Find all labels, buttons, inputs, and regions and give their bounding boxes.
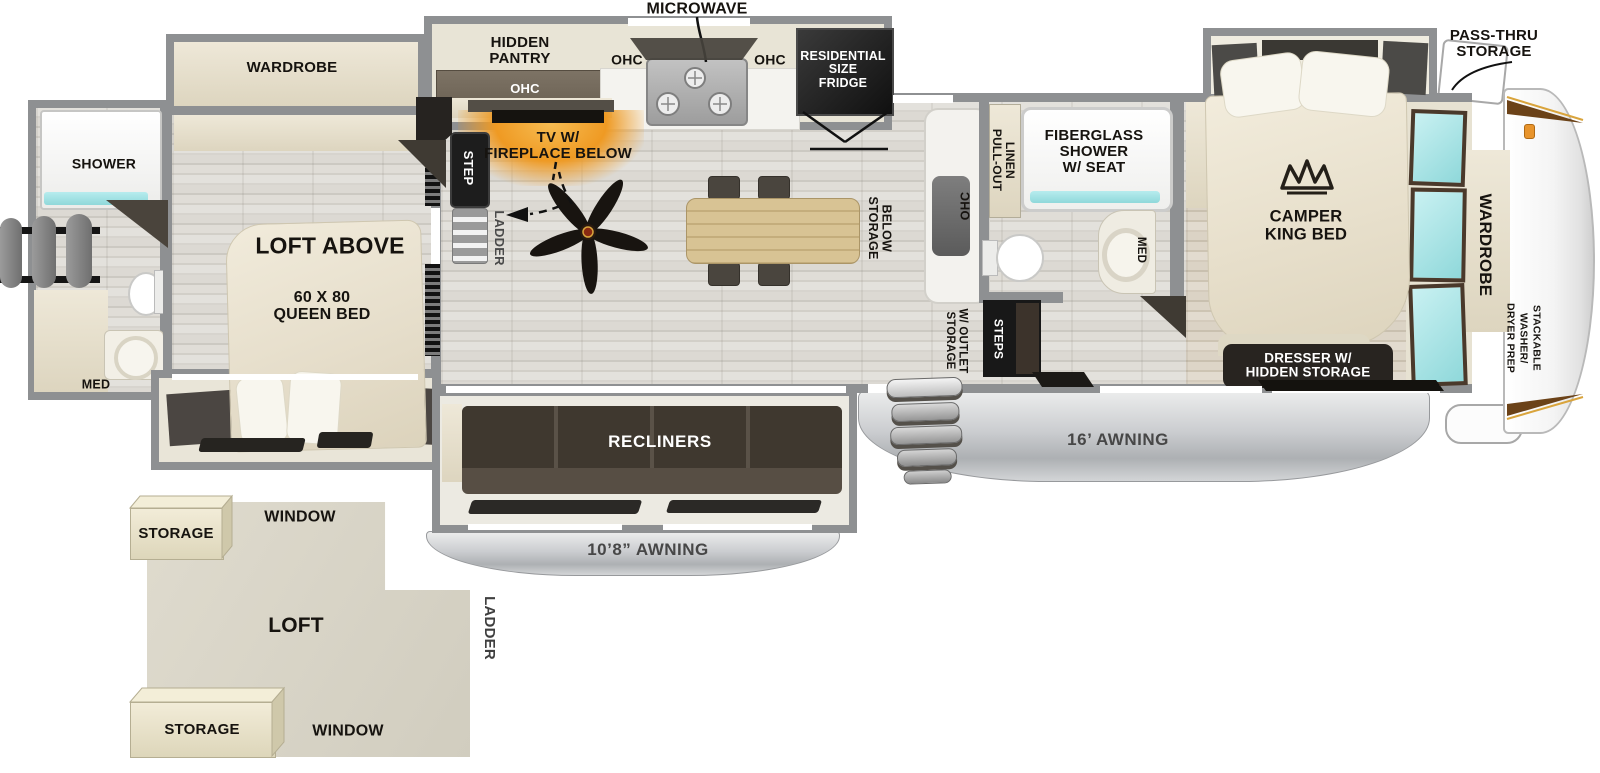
storage-below-label: STORAGE BELOW (866, 197, 893, 260)
wardrobe-mirror-door (1408, 283, 1468, 387)
loft-window-bottom-label: WINDOW (312, 722, 383, 739)
ohc-left-label: OHC (611, 53, 643, 68)
awning-small-label: 10’8” AWNING (587, 541, 709, 559)
entry-step-tread (897, 448, 958, 467)
recliner-wall-gap (663, 524, 812, 530)
hall-window-gap (1100, 386, 1262, 393)
fridge-label: RESIDENTIAL SIZE FRIDGE (800, 50, 886, 90)
rear-wardrobe-cabinet-depth (174, 115, 428, 151)
kitchen-top-window-gap (628, 18, 750, 26)
dinette-chair (758, 262, 790, 286)
shower-rear-label: SHOWER (72, 157, 136, 172)
steps-label: STEPS (992, 319, 1005, 359)
front-shower-water-edge (1030, 191, 1160, 203)
recliner-wall-gap (468, 524, 622, 530)
rear-slide-mat (198, 438, 305, 452)
pantry-ohc-label: OHC (510, 82, 540, 96)
washer-prep-label: STACKABLE WASHER/ DRYER PREP (1503, 303, 1542, 373)
front-toilet-bowl (996, 234, 1044, 282)
dinette-chair (708, 176, 740, 200)
dinette-chair (708, 262, 740, 286)
king-pillow (1297, 50, 1391, 119)
rear-bed-pillow (235, 374, 290, 447)
loft-above-label: LOFT ABOVE (255, 234, 404, 259)
pull-out-linen-label: PULL-OUT LINEN (990, 129, 1016, 191)
recliner-footrest-mat (468, 500, 643, 514)
tv-screen (492, 110, 604, 123)
loft-ladder-label: LADDER (481, 596, 497, 660)
interior-steps-cabinet (1016, 303, 1039, 374)
bike-rack-paddle (0, 218, 22, 288)
entry-step-tread (891, 402, 960, 422)
bike-rack-paddle (32, 216, 56, 288)
pass-thru-label: PASS-THRU STORAGE (1450, 28, 1538, 60)
storage-outlet-label: STORAGE W/ OUTLET (944, 308, 969, 373)
camper-king-label: CAMPER KING BED (1265, 208, 1347, 243)
stove-cooktop (646, 58, 748, 126)
entry-steps (886, 377, 966, 482)
awning-large-label: 16’ AWNING (1067, 431, 1169, 449)
entry-step-tread (890, 425, 963, 446)
rear-bedroom-door-gap (431, 208, 440, 264)
bike-rack-paddle (66, 214, 92, 288)
wardrobe-front-label: WARDROBE (1476, 194, 1494, 297)
living-opening-light (446, 386, 846, 393)
rear-bedroom-window-blind (425, 264, 440, 356)
entry-top-gap (893, 95, 953, 103)
entry-step-tread (903, 469, 951, 485)
med-front-label: MED (1135, 237, 1147, 263)
loft-storage-bottom-label: STORAGE (164, 722, 239, 738)
loft-storage-top-label: STORAGE (138, 526, 213, 542)
tv-fireplace-label: TV W/ FIREPLACE BELOW (484, 130, 632, 162)
dresser-label: DRESSER W/ HIDDEN STORAGE (1246, 352, 1371, 381)
queen-bed-label: 60 X 80 QUEEN BED (274, 289, 371, 323)
floorplan-canvas: MICROWAVE HIDDEN PANTRY OHC OHC OHC RESI… (0, 0, 1600, 773)
wardrobe-rear-label: WARDROBE (247, 60, 338, 76)
entry-step-tread (886, 377, 963, 399)
recliners-label: RECLINERS (608, 433, 712, 451)
wardrobe-mirror-door (1409, 188, 1467, 283)
island-ohc-label: OHC (959, 192, 972, 220)
front-cap (1503, 88, 1595, 434)
recliner-footrest-mat (666, 500, 822, 513)
loft-window-top-label: WINDOW (264, 508, 335, 525)
dinette-table (686, 198, 860, 264)
loft-label: LOFT (268, 615, 324, 637)
rear-shower-water-edge (44, 192, 148, 205)
king-pillow (1218, 51, 1307, 120)
microwave-label: MICROWAVE (646, 0, 747, 17)
recliner-end-table (442, 404, 462, 482)
interior-ladder-graphic (452, 208, 488, 264)
rear-slide-opening-light (172, 374, 418, 380)
rear-slide-mat (317, 432, 374, 448)
hidden-pantry-label: HIDDEN PANTRY (489, 35, 550, 67)
step-label: STEP (461, 151, 475, 186)
fiberglass-shower-label: FIBERGLASS SHOWER W/ SEAT (1045, 128, 1144, 176)
rear-bedroom-window-blind (425, 112, 440, 206)
propane-indicator (1524, 124, 1535, 139)
wardrobe-mirror-door (1409, 109, 1468, 187)
ohc-right-label: OHC (754, 53, 786, 68)
ladder-label: LADDER (492, 210, 506, 265)
med-rear-label: MED (82, 378, 110, 391)
rear-bike-rack (0, 210, 102, 298)
bedroom-window-gap (1272, 385, 1440, 393)
dinette-chair (758, 176, 790, 200)
